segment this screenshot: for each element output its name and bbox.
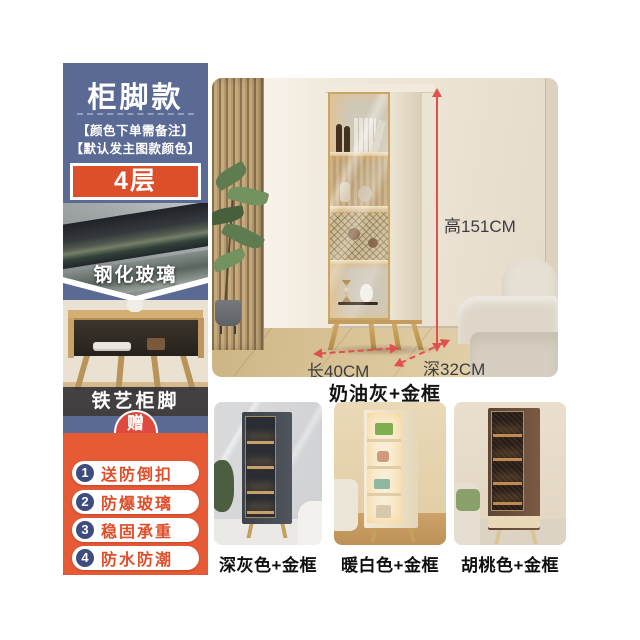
cabinet-mesh-door	[491, 411, 524, 511]
dashed-divider	[77, 113, 194, 115]
tempered-glass-photo: 钢化玻璃	[63, 203, 208, 296]
variant-photo-walnut	[454, 402, 566, 545]
gift-item: 1 送防倒扣	[72, 461, 199, 485]
plate-stack	[93, 342, 131, 349]
length-dimension-label: 长40CM	[307, 357, 369, 377]
shelf-board	[367, 439, 401, 442]
gift-panel: 赠 1 送防倒扣 2 防爆玻璃 3 稳固承重 4 防水防潮	[63, 433, 208, 575]
wall-highlight	[264, 78, 332, 328]
gift-item: 2 防爆玻璃	[72, 490, 199, 514]
lit-shelf	[247, 491, 274, 494]
main-product-photo: 高151CM 长40CM 深32CM	[212, 78, 558, 377]
height-dimension-label: 高151CM	[444, 212, 516, 237]
color-note-line1: 【颜色下单需备注】	[63, 120, 208, 139]
gift-item-text: 防水防潮	[101, 546, 173, 570]
vase	[127, 300, 143, 312]
lit-shelf	[247, 441, 274, 444]
cabinet-opening	[72, 320, 199, 356]
cabinet-side	[68, 318, 74, 358]
lit-shelf	[493, 458, 522, 461]
gift-item-text: 稳固承重	[101, 518, 173, 542]
shelf-board	[367, 466, 401, 469]
height-dimension-arrow	[436, 96, 438, 344]
decor-item	[377, 451, 389, 462]
green-cushion	[456, 489, 480, 511]
cabinet-side	[198, 318, 204, 358]
lit-shelf	[493, 502, 522, 505]
gift-item-number: 3	[76, 521, 94, 539]
cabinet-glass-door	[328, 92, 390, 320]
planter-pot	[215, 300, 241, 326]
gift-item: 4 防水防潮	[72, 546, 199, 570]
planter-stand	[220, 326, 236, 334]
decor-item	[376, 505, 391, 518]
gift-item-number: 1	[76, 464, 94, 482]
gift-item-number: 2	[76, 493, 94, 511]
lit-shelf	[493, 482, 522, 485]
shelf-board	[367, 493, 401, 496]
cabinet-glass-door	[245, 416, 276, 518]
product-promo-image: 柜脚款 【颜色下单需备注】 【默认发主图款颜色】 4层 钢化玻璃 铁艺柜脚	[0, 0, 640, 640]
cabinet-feet-photo: 铁艺柜脚	[63, 300, 208, 416]
gift-item-text: 防爆玻璃	[101, 490, 173, 514]
glass-reflection	[330, 94, 388, 318]
arrowhead-up-icon	[432, 88, 442, 97]
gift-item-text: 送防倒扣	[101, 461, 173, 485]
depth-dimension-label: 深32CM	[423, 355, 485, 377]
lit-shelf	[247, 511, 274, 514]
sofa-arm	[334, 479, 358, 531]
lit-shelf-column	[367, 413, 401, 523]
sofa-corner	[298, 501, 322, 545]
plant	[214, 460, 234, 512]
arrowhead-right-icon	[390, 343, 400, 354]
variant-photo-warm-white	[334, 402, 446, 545]
lit-shelf	[493, 434, 522, 437]
cabinet-side-panel	[390, 92, 422, 320]
gold-apron	[328, 320, 422, 324]
variant-photo-dark-gray	[214, 402, 322, 545]
decor-item	[374, 479, 390, 489]
gift-item: 3 稳固承重	[72, 518, 199, 542]
green-box	[375, 423, 393, 435]
layers-badge: 4层	[70, 163, 201, 200]
variant-label-dark-gray: 深灰色+金框	[214, 551, 322, 576]
variant-label-warm-white: 暖白色+金框	[334, 551, 446, 576]
cabinet-base-rail	[488, 516, 540, 528]
gift-item-number: 4	[76, 549, 94, 567]
variant-label-walnut: 胡桃色+金框	[454, 551, 566, 576]
lit-shelf	[247, 466, 274, 469]
shelf-item	[147, 338, 165, 350]
sidebar-title: 柜脚款	[63, 74, 208, 116]
info-sidebar: 柜脚款 【颜色下单需备注】 【默认发主图款颜色】 4层 钢化玻璃 铁艺柜脚	[63, 63, 208, 575]
color-note-line2: 【默认发主图款颜色】	[63, 138, 208, 157]
